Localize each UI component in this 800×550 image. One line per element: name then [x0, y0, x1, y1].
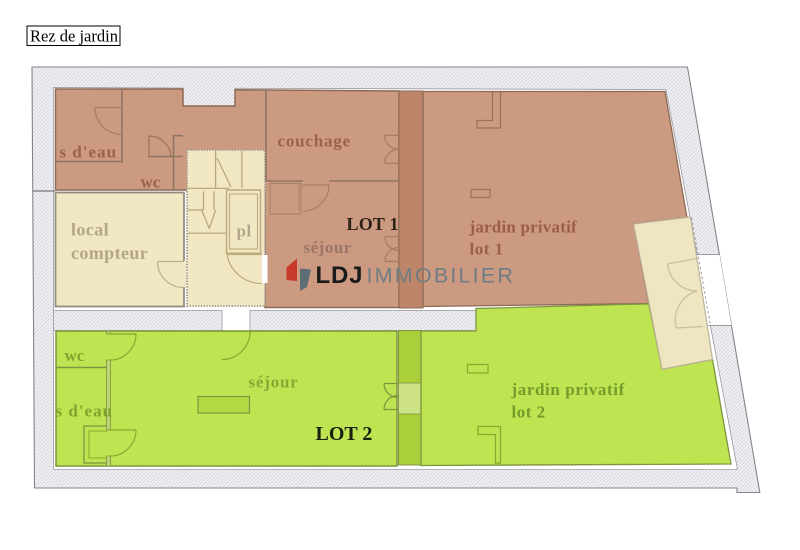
svg-text:lot 2: lot 2 [512, 403, 546, 422]
svg-text:LDJ: LDJ [316, 262, 364, 289]
svg-text:séjour: séjour [304, 238, 352, 257]
svg-text:séjour: séjour [249, 373, 299, 392]
svg-text:s d'eau: s d'eau [56, 402, 114, 421]
svg-text:LOT 2: LOT 2 [316, 423, 373, 445]
svg-text:jardin privatif: jardin privatif [469, 218, 577, 237]
svg-text:jardin privatif: jardin privatif [511, 380, 625, 399]
svg-text:IMMOBILIER: IMMOBILIER [367, 264, 516, 288]
svg-text:lot 1: lot 1 [470, 240, 504, 259]
svg-text:pl: pl [237, 222, 252, 241]
svg-text:wc: wc [65, 346, 85, 365]
svg-text:Rez de jardin: Rez de jardin [30, 27, 118, 46]
svg-text:LOT 1: LOT 1 [347, 214, 399, 234]
svg-text:couchage: couchage [278, 132, 351, 151]
svg-text:compteur: compteur [71, 243, 148, 263]
svg-text:wc: wc [141, 173, 161, 192]
svg-text:s d'eau: s d'eau [60, 143, 118, 162]
svg-text:local: local [71, 220, 109, 240]
